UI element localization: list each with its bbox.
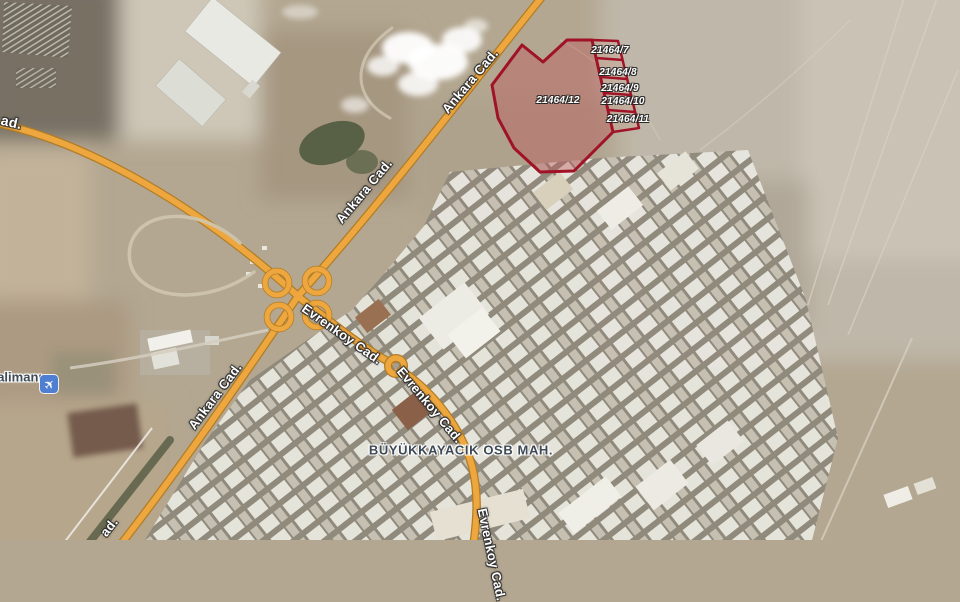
map-viewport[interactable]: Ankara Cad. Ankara Cad. Ankara Cad. ad. … (0, 0, 960, 540)
satellite-imagery (0, 0, 960, 540)
airport-label: alimanı (0, 371, 42, 384)
parcel-label-21464-7: 21464/7 (591, 46, 629, 56)
airport-icon[interactable]: ✈ (40, 375, 58, 393)
parcel-label-21464-12: 21464/12 (536, 96, 579, 106)
parcel-label-21464-11: 21464/11 (607, 115, 650, 125)
parcel-label-21464-9: 21464/9 (601, 84, 639, 94)
parcel-label-21464-10: 21464/10 (601, 97, 644, 107)
district-label: BÜYÜKKAYACIK OSB MAH. (369, 444, 553, 457)
airplane-glyph: ✈ (41, 376, 58, 393)
parcel-label-21464-8: 21464/8 (599, 68, 637, 78)
road-label-cut-top-left: ad. (0, 113, 23, 131)
